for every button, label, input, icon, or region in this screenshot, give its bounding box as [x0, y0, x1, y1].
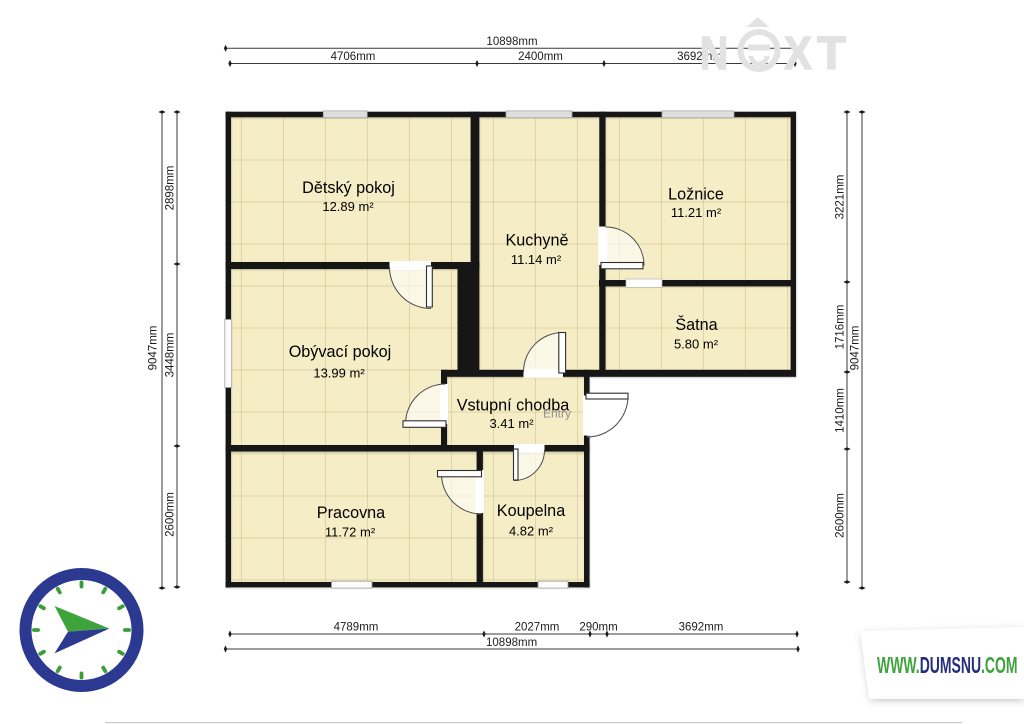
svg-text:1716mm: 1716mm: [835, 305, 847, 350]
svg-text:Entry: Entry: [543, 407, 571, 421]
svg-text:11.72 m²: 11.72 m²: [325, 524, 376, 539]
svg-text:11.21 m²: 11.21 m²: [671, 205, 722, 220]
svg-text:11.14 m²: 11.14 m²: [511, 252, 562, 267]
svg-text:Ložnice: Ložnice: [668, 185, 724, 203]
svg-text:13.99 m²: 13.99 m²: [313, 365, 365, 380]
svg-text:Pracovna: Pracovna: [317, 504, 385, 522]
svg-text:T: T: [817, 27, 846, 78]
svg-text:X: X: [784, 28, 812, 80]
svg-text:Šatna: Šatna: [675, 315, 717, 334]
svg-text:290mm: 290mm: [579, 622, 617, 634]
svg-text:4789mm: 4789mm: [334, 622, 379, 634]
svg-text:3692mm: 3692mm: [679, 622, 724, 634]
svg-text:2600mm: 2600mm: [835, 493, 847, 538]
svg-text:Dětský pokoj: Dětský pokoj: [302, 179, 395, 197]
svg-text:1410mm: 1410mm: [835, 388, 847, 433]
svg-text:4.82 m²: 4.82 m²: [509, 524, 554, 539]
svg-text:Koupelna: Koupelna: [497, 502, 565, 520]
svg-text:N: N: [700, 28, 728, 80]
svg-text:WWW.DUMSNU.COM: WWW.DUMSNU.COM: [877, 654, 1018, 680]
svg-text:2898mm: 2898mm: [165, 166, 177, 211]
svg-text:2027mm: 2027mm: [515, 622, 560, 634]
svg-text:3.41 m²: 3.41 m²: [489, 416, 534, 431]
svg-text:10898mm: 10898mm: [486, 637, 537, 649]
svg-text:9047mm: 9047mm: [850, 326, 862, 371]
svg-text:2400mm: 2400mm: [518, 51, 563, 63]
svg-text:5.80 m²: 5.80 m²: [674, 336, 719, 351]
svg-text:4706mm: 4706mm: [331, 51, 376, 63]
svg-text:10898mm: 10898mm: [486, 36, 537, 48]
svg-text:3448mm: 3448mm: [165, 333, 177, 378]
svg-text:3221mm: 3221mm: [835, 175, 847, 220]
svg-text:9047mm: 9047mm: [148, 326, 160, 371]
svg-text:Kuchyně: Kuchyně: [506, 232, 569, 250]
svg-text:2600mm: 2600mm: [165, 492, 177, 537]
svg-text:12.89 m²: 12.89 m²: [322, 199, 374, 214]
svg-text:Obývací pokoj: Obývací pokoj: [289, 343, 392, 361]
